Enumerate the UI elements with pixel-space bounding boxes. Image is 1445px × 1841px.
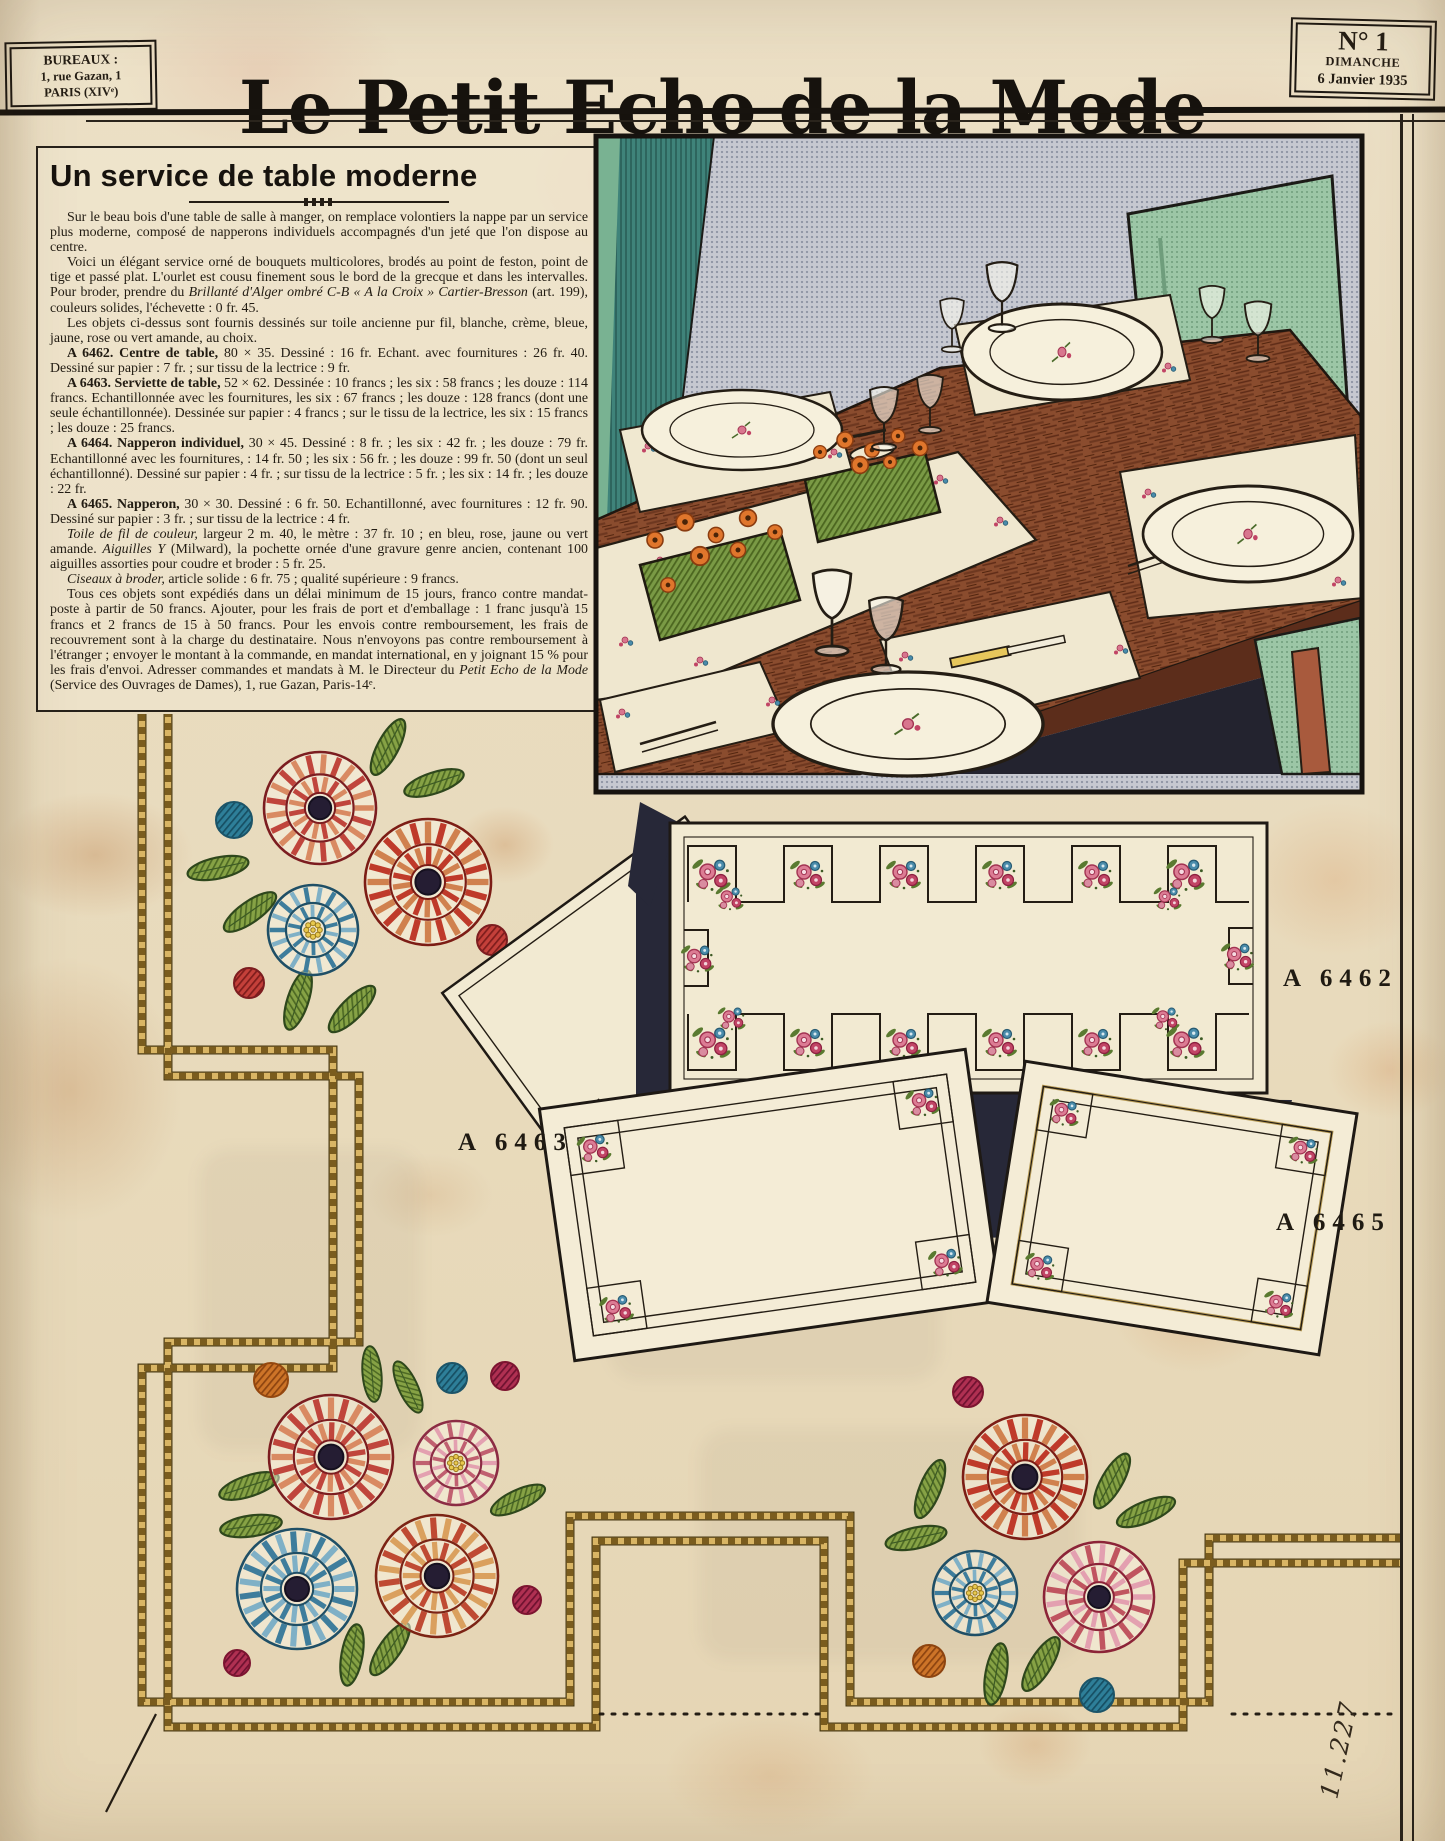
bureaux-line3: PARIS (XIVᵉ) — [12, 83, 150, 101]
article-paragraph: A 6463. Serviette de table, 52 × 62. Des… — [50, 376, 588, 436]
masthead-rule-thin — [86, 120, 1445, 122]
fold-line — [106, 1714, 156, 1812]
issue-number: N° 1 — [1297, 26, 1430, 56]
issue-date: 6 Janvier 1935 — [1296, 69, 1428, 90]
plate — [642, 390, 842, 470]
article-paragraph: A 6462. Centre de table, 80 × 35. Dessin… — [50, 346, 588, 376]
label-a6463: A 6463 — [458, 1129, 573, 1156]
article-paragraph: A 6465. Napperon, 30 × 30. Dessiné : 6 f… — [50, 497, 588, 527]
embroidery-pattern: A 6462 A 6463 A 6465 11.227 — [0, 620, 1445, 1841]
article-paragraph: Voici un élégant service orné de bouquet… — [50, 255, 588, 315]
article-paragraph: Sur le beau bois d'une table de salle à … — [50, 210, 588, 255]
article-divider — [189, 201, 449, 203]
article-title: Un service de table moderne — [50, 158, 588, 194]
napperon-a6465 — [987, 1061, 1357, 1355]
centre-de-table-a6462 — [670, 823, 1267, 1093]
plate — [962, 304, 1162, 400]
plate — [1143, 486, 1353, 582]
magazine-page: BUREAUX : 1, rue Gazan, 1 PARIS (XIVᵉ) L… — [0, 0, 1445, 1841]
article-paragraph: A 6464. Napperon individuel, 30 × 45. De… — [50, 436, 588, 496]
article-paragraph: Ciseaux à broder, article solide : 6 fr.… — [50, 572, 588, 587]
label-a6462: A 6462 — [1283, 965, 1398, 992]
bureaux-box: BUREAUX : 1, rue Gazan, 1 PARIS (XIVᵉ) — [9, 45, 152, 107]
article-paragraph: Toile de fil de couleur, largeur 2 m. 40… — [50, 527, 588, 572]
article-paragraph: Les objets ci-dessus sont fournis dessin… — [50, 316, 588, 346]
handwritten-number: 11.227 — [1315, 1698, 1364, 1801]
issue-box: N° 1 DIMANCHE 6 Janvier 1935 — [1294, 22, 1432, 95]
label-a6465: A 6465 — [1276, 1209, 1391, 1236]
